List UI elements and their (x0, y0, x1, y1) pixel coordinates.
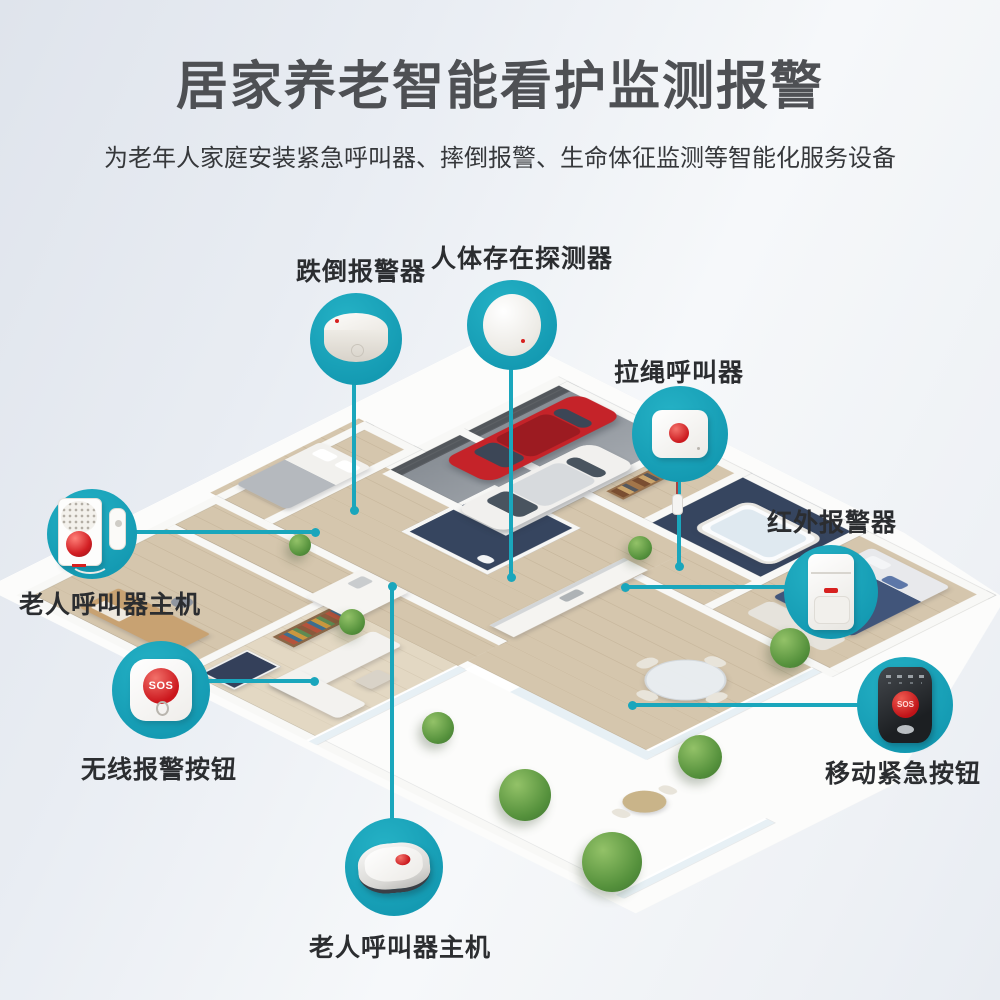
sos-button-text: SOS (892, 691, 919, 718)
connector-dot (388, 582, 397, 591)
bush (770, 628, 810, 668)
bush (499, 769, 551, 821)
bush (422, 712, 454, 744)
bubble-infrared (784, 545, 878, 639)
mobile-sos-icon: SOS (878, 667, 932, 743)
bubble-mobile-button: SOS (857, 657, 953, 753)
pull-cord-handle (672, 494, 683, 515)
plant (339, 609, 365, 635)
connector-dot (350, 506, 359, 515)
label-fall-alarm: 跌倒报警器 (296, 252, 426, 288)
connector-dot (628, 701, 637, 710)
label-host-bottom: 老人呼叫器主机 (309, 928, 491, 964)
label-wireless-button: 无线报警按钮 (81, 750, 237, 786)
connector-dot (310, 677, 319, 686)
plant (628, 536, 652, 560)
bubble-pull-cord (632, 386, 728, 482)
bubble-presence-detector (467, 280, 557, 370)
connector-host-bottom (390, 586, 394, 819)
connector-dot (675, 562, 684, 571)
connector-dot (621, 583, 630, 592)
connector-fall-alarm (352, 383, 356, 511)
connector-mobile-button (632, 703, 858, 707)
label-mobile-button: 移动紧急按钮 (825, 754, 981, 790)
sos-button-icon: SOS (130, 659, 192, 721)
label-host-left: 老人呼叫器主机 (19, 585, 201, 621)
label-pull-cord: 拉绳呼叫器 (614, 353, 744, 389)
presence-detector-icon (483, 294, 541, 356)
bubble-wireless-button: SOS (112, 641, 210, 739)
sos-button-text: SOS (143, 668, 179, 704)
plant (289, 534, 311, 556)
infrared-sensor-icon (808, 554, 854, 630)
bubble-host-bottom (345, 818, 443, 916)
label-presence-detector: 人体存在探测器 (431, 239, 613, 275)
fall-alarm-icon (324, 313, 388, 365)
bubble-fall-alarm (310, 293, 402, 385)
bush (582, 832, 642, 892)
connector-dot (311, 528, 320, 537)
page-subtitle: 为老年人家庭安装紧急呼叫器、摔倒报警、生命体征监测等智能化服务设备 (0, 138, 1000, 173)
connector-wireless-button (208, 679, 314, 683)
bubble-host-left (47, 489, 137, 579)
connector-dot (507, 573, 516, 582)
pull-cord-caller-icon (652, 410, 708, 458)
connector-presence (509, 367, 513, 578)
connector-infrared (625, 585, 785, 589)
bush (678, 735, 722, 779)
caller-hub-icon (356, 840, 432, 894)
page-title: 居家养老智能看护监测报警 (0, 44, 1000, 119)
connector-host-left (135, 530, 315, 534)
caller-host-icon (58, 498, 126, 570)
poster: 居家养老智能看护监测报警 为老年人家庭安装紧急呼叫器、摔倒报警、生命体征监测等智… (0, 0, 1000, 1000)
label-infrared: 红外报警器 (767, 503, 897, 539)
